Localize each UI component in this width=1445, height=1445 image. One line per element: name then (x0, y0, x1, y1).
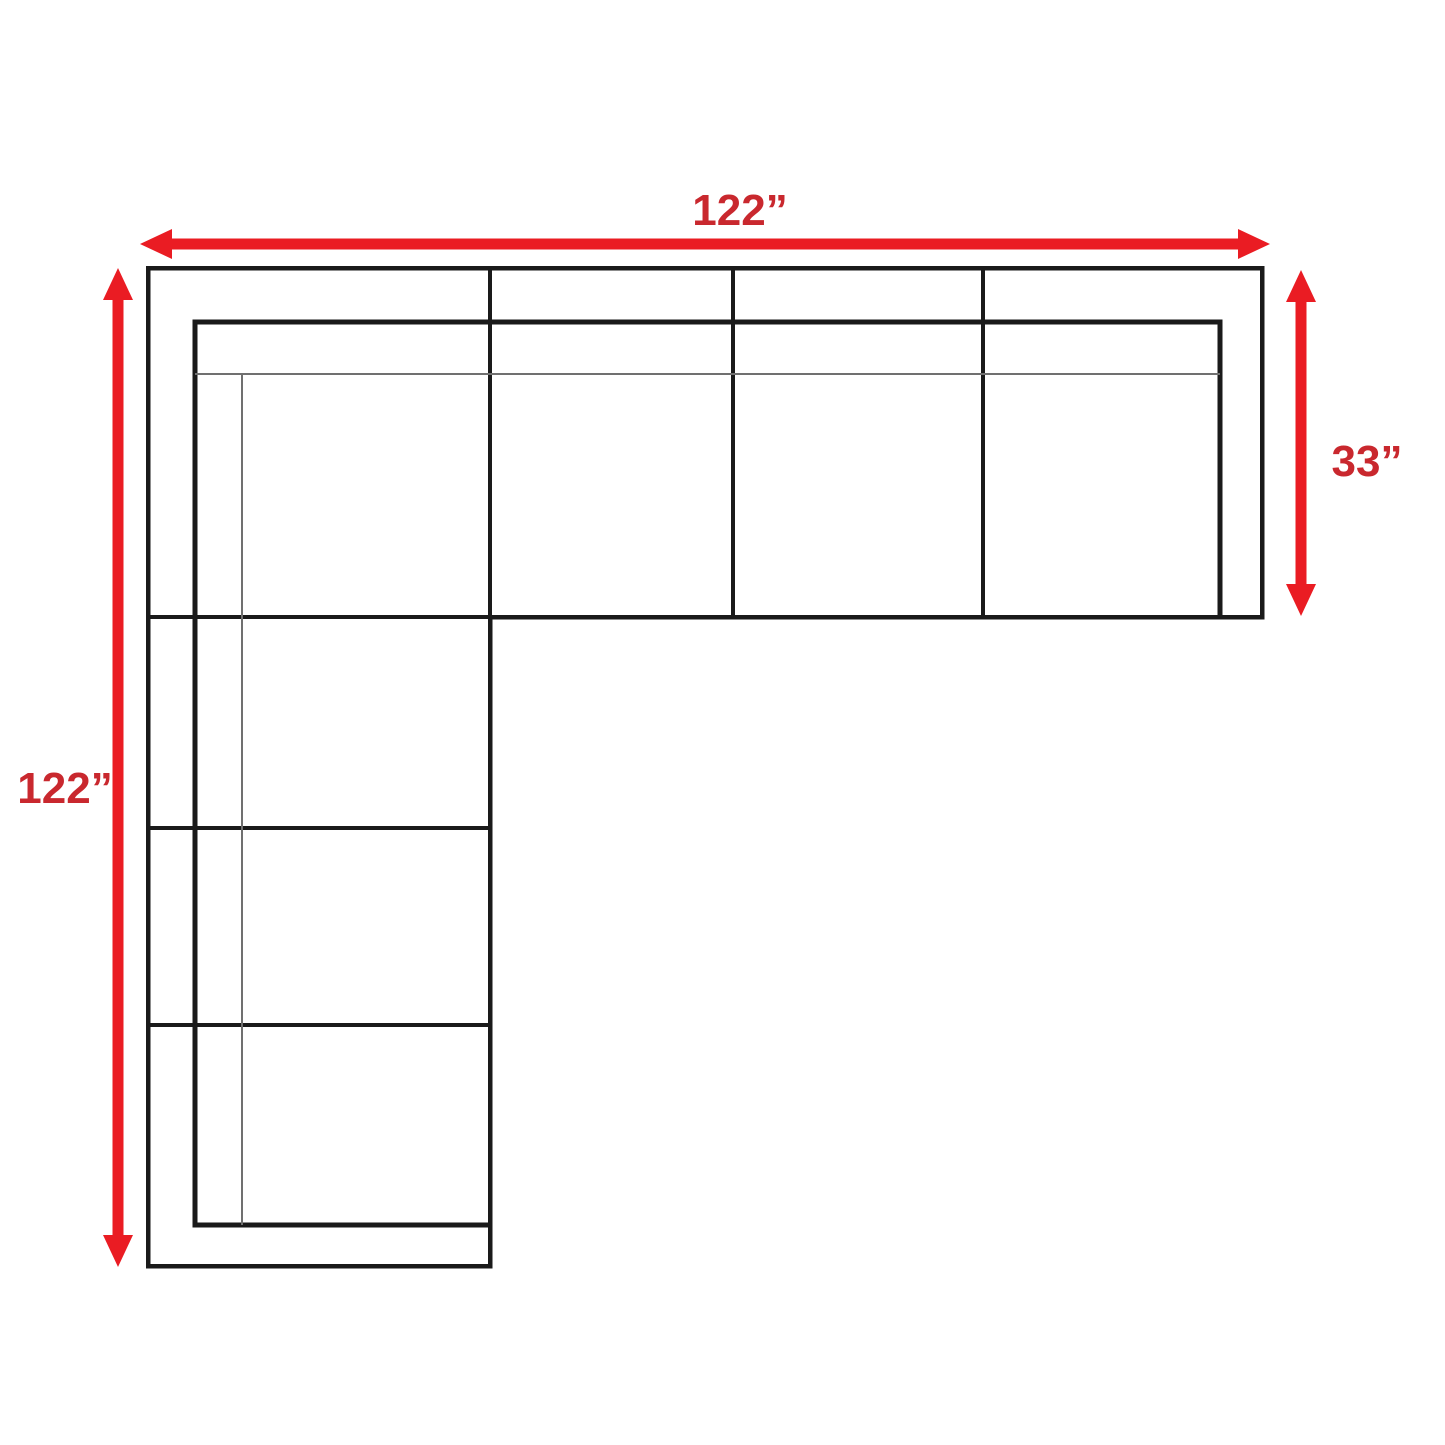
arrowhead-down (1286, 584, 1316, 616)
dimension-label-top: 122” (640, 189, 840, 233)
arrowhead-up (1286, 270, 1316, 302)
arrowhead-right (1238, 229, 1270, 259)
arrowhead-up (103, 268, 133, 300)
dimension-label-left: 122” (15, 767, 115, 811)
backrest-inner-line (195, 322, 1220, 1225)
cushion-detail-lines (195, 374, 1220, 1225)
sofa-outer-boundary (148, 268, 1262, 1266)
arrowhead-down (103, 1235, 133, 1267)
sofa-outline-group (148, 268, 1262, 1266)
dimension-arrow-right (1286, 270, 1316, 616)
sectional-dimension-diagram: 122” 122” 33” (0, 0, 1445, 1445)
arrowhead-left (140, 229, 172, 259)
dimension-label-right: 33” (1317, 440, 1417, 484)
